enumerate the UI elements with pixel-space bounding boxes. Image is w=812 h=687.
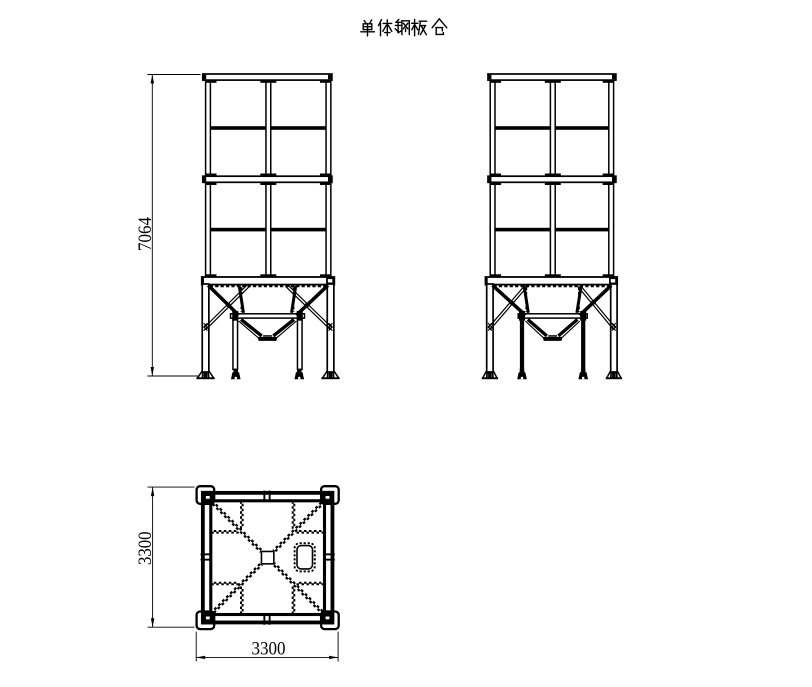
svg-text:3300: 3300: [252, 639, 286, 660]
svg-text:3300: 3300: [135, 531, 156, 565]
svg-text:7064: 7064: [135, 217, 156, 251]
